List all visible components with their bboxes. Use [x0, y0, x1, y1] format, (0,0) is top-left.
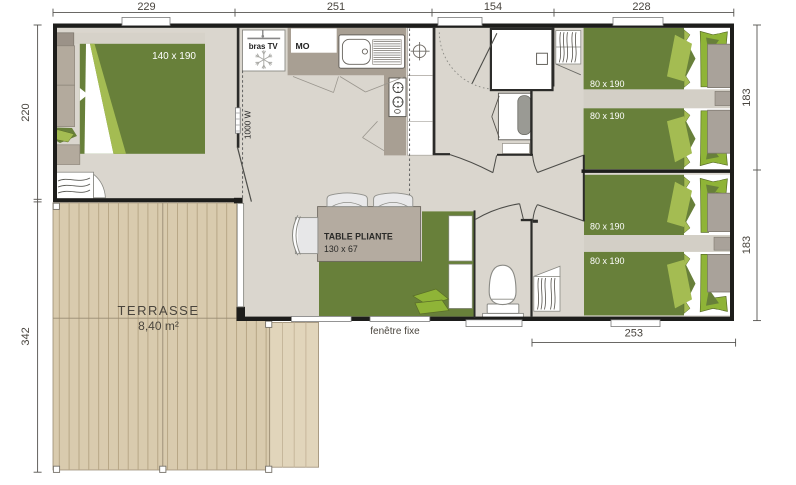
svg-text:130 x 67: 130 x 67 — [324, 244, 358, 254]
svg-text:251: 251 — [327, 1, 345, 13]
svg-text:80 x 190: 80 x 190 — [590, 79, 625, 89]
svg-text:MO: MO — [296, 41, 310, 51]
svg-text:bras TV: bras TV — [249, 42, 279, 51]
svg-text:80 x 190: 80 x 190 — [590, 222, 625, 232]
svg-text:TABLE PLIANTE: TABLE PLIANTE — [324, 232, 393, 242]
svg-text:228: 228 — [632, 1, 650, 13]
svg-text:154: 154 — [484, 1, 502, 13]
svg-text:253: 253 — [625, 328, 643, 340]
svg-text:TERRASSE: TERRASSE — [117, 303, 199, 318]
svg-text:fenêtre fixe: fenêtre fixe — [370, 326, 420, 337]
svg-text:342: 342 — [20, 327, 32, 345]
svg-text:183: 183 — [741, 88, 753, 106]
svg-text:183: 183 — [741, 236, 753, 254]
svg-text:1000 W: 1000 W — [243, 110, 253, 139]
svg-text:140 x 190: 140 x 190 — [152, 51, 196, 62]
svg-text:80 x 190: 80 x 190 — [590, 256, 625, 266]
svg-text:229: 229 — [137, 1, 155, 13]
svg-text:220: 220 — [20, 103, 32, 121]
svg-text:8,40 m²: 8,40 m² — [138, 319, 179, 333]
svg-text:80 x 190: 80 x 190 — [590, 111, 625, 121]
